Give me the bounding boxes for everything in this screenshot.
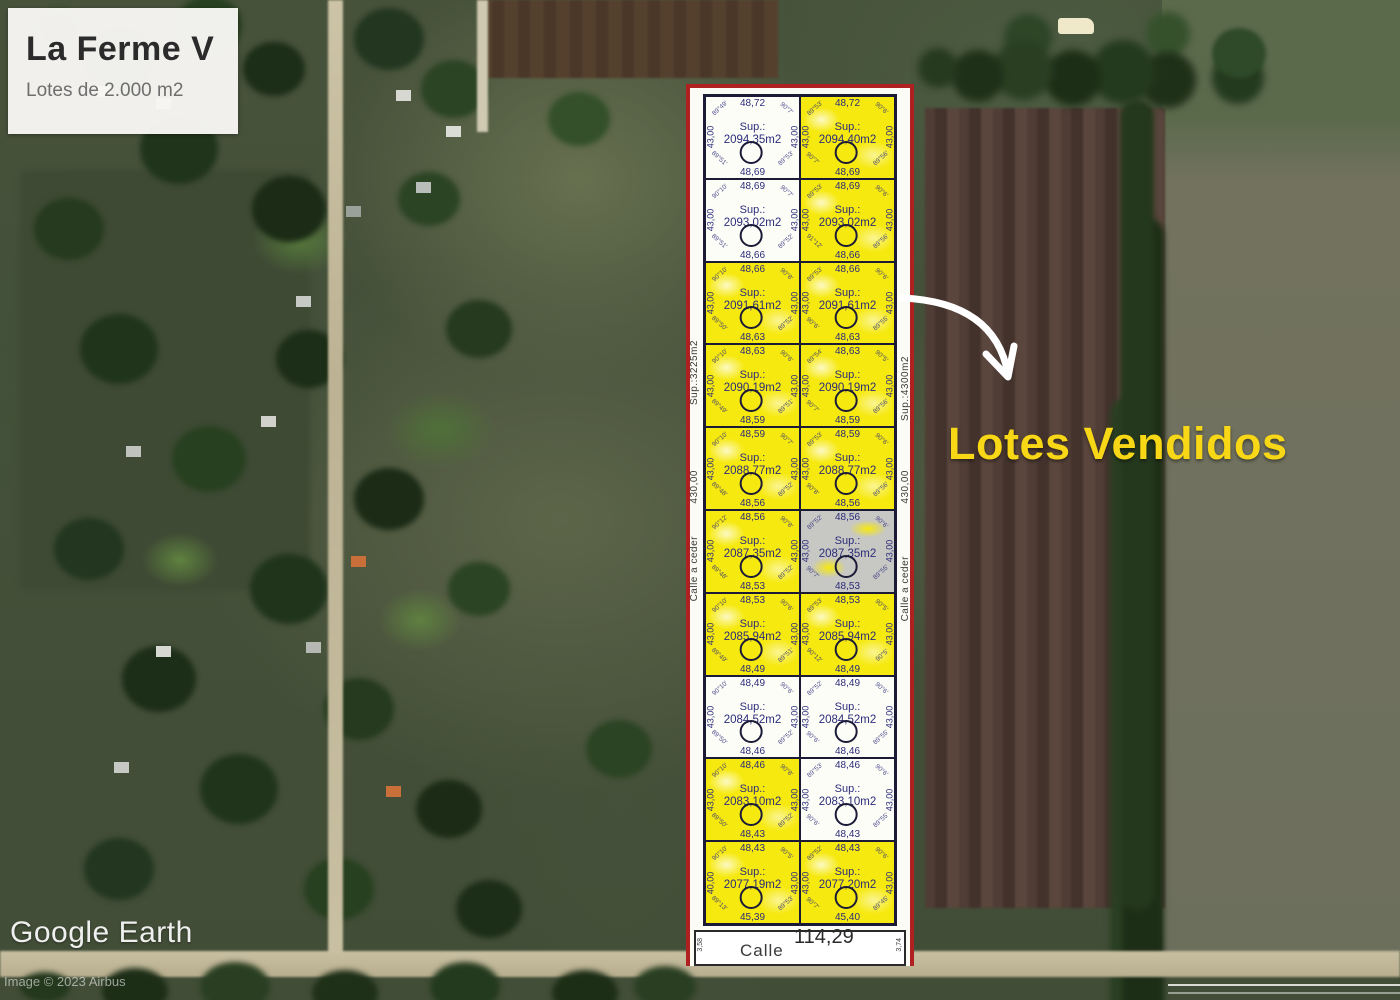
- lot-bottom-width: 48,46: [740, 746, 765, 757]
- lot-top-width: 48,53: [740, 595, 765, 606]
- lot-left-width: 43,00: [800, 540, 810, 563]
- lot-angle-top-left: 90°10': [711, 431, 729, 448]
- lot-cell-row8-right: 48,49 Sup.: 2084,52m2 43,00 43,00 89°52'…: [800, 676, 895, 759]
- lot-bottom-width: 48,46: [835, 746, 860, 757]
- lot-angle-bottom-right: 89°51': [777, 398, 795, 415]
- lot-angle-bottom-right: 89°53': [777, 895, 795, 912]
- lot-bottom-width: 48,49: [835, 664, 860, 675]
- lot-top-width: 48,49: [835, 678, 860, 689]
- street-strip: 3,58 Calle 114,29 3,74: [694, 930, 906, 966]
- lot-angle-top-left: 90°10': [711, 265, 729, 282]
- lot-angle-bottom-left: 89°48': [710, 564, 728, 581]
- lot-top-width: 48,53: [835, 595, 860, 606]
- lot-right-width: 43,00: [790, 375, 800, 398]
- lot-angle-bottom-left: 90°6': [805, 813, 821, 828]
- lot-sup-label: Sup.:: [835, 287, 861, 299]
- lot-sup-label: Sup.:: [835, 783, 861, 795]
- lot-angle-top-right: 90°8': [779, 763, 795, 778]
- well-circle-icon: [834, 638, 857, 661]
- lot-sup-label: Sup.:: [740, 121, 766, 133]
- lot-right-width: 43,00: [790, 789, 800, 812]
- lot-angle-bottom-left: 89°13': [710, 895, 728, 912]
- lot-angle-bottom-left: 91°12': [805, 232, 823, 249]
- lot-left-width: 43,00: [800, 706, 810, 729]
- right-margin-street-label: Calle a ceder: [900, 556, 911, 621]
- lot-sup-label: Sup.:: [740, 535, 766, 547]
- lot-bottom-width: 48,56: [835, 498, 860, 509]
- lot-angle-top-right: 90°6': [874, 515, 890, 530]
- lot-right-width: 43,00: [790, 209, 800, 232]
- street-tick-right: 3,74: [896, 938, 903, 952]
- lot-cell-row9-left: 48,46 Sup.: 2083,10m2 43,00 43,00 90°10'…: [705, 758, 800, 841]
- lot-cell-row7-right: 48,53 Sup.: 2085,94m2 43,00 43,00 89°53'…: [800, 593, 895, 676]
- lot-angle-top-right: 90°6': [874, 432, 890, 447]
- lot-bottom-width: 48,53: [740, 581, 765, 592]
- left-margin-street-label: Calle a ceder: [689, 536, 700, 601]
- title-card: La Ferme V Lotes de 2.000 m2: [8, 8, 238, 134]
- tree: [1212, 28, 1266, 78]
- lot-angle-top-left: 89°53': [806, 597, 824, 614]
- lot-cell-row6-left: 48,56 Sup.: 2087,35m2 43,00 43,00 90°12'…: [705, 510, 800, 593]
- lot-angle-bottom-left: 89°50': [710, 315, 728, 332]
- well-circle-icon: [739, 141, 762, 164]
- lot-angle-top-right: 90°6': [874, 101, 890, 116]
- lot-top-width: 48,59: [740, 429, 765, 440]
- well-circle-icon: [739, 555, 762, 578]
- lot-cell-row2-right: 48,69 Sup.: 2093,02m2 43,00 43,00 89°53'…: [800, 179, 895, 262]
- lot-cell-row10-left: 48,43 Sup.: 2077,19m2 40,00 43,00 90°10'…: [705, 841, 800, 924]
- lot-right-width: 43,00: [885, 789, 895, 812]
- lot-angle-bottom-left: 90°12': [805, 646, 823, 663]
- lot-sup-label: Sup.:: [740, 452, 766, 464]
- lot-top-width: 48,43: [835, 843, 860, 854]
- sold-label: Lotes Vendidos: [948, 418, 1288, 470]
- lot-left-width: 43,00: [800, 871, 810, 894]
- lot-top-width: 48,63: [740, 346, 765, 357]
- lot-angle-top-left: 89°53': [806, 431, 824, 448]
- satellite-lawns: [0, 0, 690, 1000]
- lot-sup-label: Sup.:: [835, 701, 861, 713]
- lot-top-width: 48,63: [835, 346, 860, 357]
- street-tick-left: 3,58: [697, 938, 704, 952]
- lot-angle-bottom-right: 89°52': [777, 564, 795, 581]
- left-margin-length-label: 430,00: [689, 470, 700, 504]
- lot-sup-label: Sup.:: [835, 618, 861, 630]
- lot-bottom-width: 48,63: [835, 332, 860, 343]
- well-circle-icon: [834, 886, 857, 909]
- lot-bottom-width: 48,59: [835, 415, 860, 426]
- lot-angle-top-left: 89°53': [806, 183, 824, 200]
- lot-bottom-width: 48,63: [740, 332, 765, 343]
- lot-angle-top-right: 90°6': [779, 349, 795, 364]
- lot-angle-top-right: 90°6': [779, 681, 795, 696]
- lot-angle-top-left: 90°10': [711, 679, 729, 696]
- lot-left-width: 43,00: [705, 126, 715, 149]
- lot-top-width: 48,72: [835, 98, 860, 109]
- lot-top-width: 48,66: [835, 264, 860, 275]
- lot-right-width: 43,00: [885, 457, 895, 480]
- lot-bottom-width: 48,69: [740, 167, 765, 178]
- lot-cell-row5-left: 48,59 Sup.: 2088,77m2 43,00 43,00 90°10'…: [705, 427, 800, 510]
- well-circle-icon: [739, 389, 762, 412]
- well-circle-icon: [739, 306, 762, 329]
- lot-bottom-width: 48,43: [740, 829, 765, 840]
- lot-left-width: 43,00: [705, 209, 715, 232]
- lot-sup-label: Sup.:: [740, 204, 766, 216]
- lot-cell-row8-left: 48,49 Sup.: 2084,52m2 43,00 43,00 90°10'…: [705, 676, 800, 759]
- lot-angle-bottom-left: 90°7': [805, 896, 821, 911]
- satellite-tilled-field-top: [478, 0, 778, 78]
- lot-cell-row5-right: 48,59 Sup.: 2088,77m2 43,00 43,00 89°53'…: [800, 427, 895, 510]
- lot-right-width: 43,00: [790, 292, 800, 315]
- left-margin-sup-label: Sup.:3225m2: [689, 340, 700, 405]
- lot-cell-row10-right: 48,43 Sup.: 2077,20m2 43,00 43,00 89°52'…: [800, 841, 895, 924]
- lot-angle-top-right: 90°6': [874, 184, 890, 199]
- well-circle-icon: [739, 638, 762, 661]
- street-width: 114,29: [794, 926, 854, 949]
- lot-left-width: 43,00: [800, 789, 810, 812]
- lot-right-width: 43,00: [885, 623, 895, 646]
- lot-sup-label: Sup.:: [835, 866, 861, 878]
- lot-angle-bottom-right: 89°52': [777, 812, 795, 829]
- lot-cell-row7-left: 48,53 Sup.: 2085,94m2 43,00 43,00 90°10'…: [705, 593, 800, 676]
- satellite-plan-image: La Ferme V Lotes de 2.000 m2 Sup.:3225m2…: [0, 0, 1400, 1000]
- lot-bottom-width: 48,49: [740, 664, 765, 675]
- lot-left-width: 43,00: [800, 457, 810, 480]
- lot-left-width: 43,00: [800, 292, 810, 315]
- lot-angle-top-left: 89°49': [711, 100, 729, 117]
- lot-angle-top-right: 90°7': [779, 184, 795, 199]
- lot-right-width: 43,00: [885, 540, 895, 563]
- lot-angle-bottom-right: 89°52': [777, 232, 795, 249]
- lot-left-width: 43,00: [705, 706, 715, 729]
- lot-right-width: 43,00: [790, 706, 800, 729]
- lot-angle-top-left: 89°53': [806, 265, 824, 282]
- lot-angle-top-right: 90°7': [779, 432, 795, 447]
- lot-angle-bottom-right: 89°56': [872, 232, 890, 249]
- lot-angle-top-left: 89°52': [806, 845, 824, 862]
- lot-top-width: 48,59: [835, 429, 860, 440]
- lot-angle-bottom-left: 89°51': [710, 232, 728, 249]
- lot-bottom-width: 48,53: [835, 581, 860, 592]
- lot-left-width: 43,00: [705, 540, 715, 563]
- lot-cell-row2-left: 48,69 Sup.: 2093,02m2 43,00 43,00 90°10'…: [705, 179, 800, 262]
- page-subtitle: Lotes de 2.000 m2: [26, 80, 183, 102]
- lot-top-width: 48,46: [835, 760, 860, 771]
- lot-angle-top-left: 90°10': [711, 762, 729, 779]
- lot-top-width: 48,69: [835, 181, 860, 192]
- well-circle-icon: [739, 472, 762, 495]
- lot-left-width: 43,00: [705, 457, 715, 480]
- lot-right-width: 43,00: [790, 871, 800, 894]
- lot-cell-row4-right: 48,63 Sup.: 2090,19m2 43,00 43,00 89°54'…: [800, 344, 895, 427]
- tree-band: [918, 48, 958, 88]
- lot-sup-label: Sup.:: [740, 783, 766, 795]
- lot-angle-bottom-right: 89°56': [872, 398, 890, 415]
- subdivision-plan: Sup.:3225m2 430,00 Calle a ceder Sup.:43…: [686, 84, 914, 966]
- lot-angle-bottom-right: 89°55': [872, 812, 890, 829]
- lot-bottom-width: 45,39: [740, 912, 765, 923]
- lot-angle-top-right: 90°6': [874, 681, 890, 696]
- lot-angle-bottom-right: 89°45': [872, 895, 890, 912]
- lot-cell-row3-right: 48,66 Sup.: 2091,61m2 43,00 43,00 89°53'…: [800, 262, 895, 345]
- lot-angle-bottom-left: 89°49': [710, 398, 728, 415]
- well-circle-icon: [834, 555, 857, 578]
- lot-right-width: 43,00: [885, 706, 895, 729]
- well-circle-icon: [739, 803, 762, 826]
- lot-angle-bottom-right: 89°52': [777, 729, 795, 746]
- lot-top-width: 48,46: [740, 760, 765, 771]
- lot-angle-bottom-right: 89°52': [777, 481, 795, 498]
- lot-angle-bottom-left: 90°7': [805, 151, 821, 166]
- lot-right-width: 43,00: [885, 126, 895, 149]
- lot-bottom-width: 48,69: [835, 167, 860, 178]
- lot-right-width: 43,00: [885, 209, 895, 232]
- lot-top-width: 48,72: [740, 98, 765, 109]
- lot-cell-row4-left: 48,63 Sup.: 2090,19m2 43,00 43,00 90°10'…: [705, 344, 800, 427]
- lot-angle-top-left: 89°54': [806, 348, 824, 365]
- well-circle-icon: [739, 224, 762, 247]
- lot-bottom-width: 48,59: [740, 415, 765, 426]
- lot-cell-row1-right: 48,72 Sup.: 2094,40m2 43,00 43,00 89°53'…: [800, 96, 895, 179]
- lot-angle-bottom-right: 89°52': [777, 315, 795, 332]
- lot-cell-row3-left: 48,66 Sup.: 2091,61m2 43,00 43,00 90°10'…: [705, 262, 800, 345]
- lot-angle-bottom-left: 89°50': [710, 729, 728, 746]
- lot-top-width: 48,56: [740, 512, 765, 523]
- road-vertical-short: [477, 0, 488, 132]
- lot-angle-bottom-left: 90°6': [805, 316, 821, 331]
- right-margin-length-label: 430,00: [900, 470, 911, 504]
- lot-top-width: 48,56: [835, 512, 860, 523]
- lot-angle-bottom-left: 90°7': [805, 565, 821, 580]
- lot-left-width: 43,00: [800, 623, 810, 646]
- lot-top-width: 48,66: [740, 264, 765, 275]
- imagery-credit: Image © 2023 Airbus: [4, 974, 126, 989]
- lot-top-width: 48,69: [740, 181, 765, 192]
- lot-left-width: 43,00: [800, 209, 810, 232]
- lot-angle-top-right: 90°8': [779, 515, 795, 530]
- road-vertical: [328, 0, 343, 958]
- lot-left-width: 43,00: [800, 375, 810, 398]
- tree-line: [1120, 100, 1154, 910]
- lot-top-width: 48,49: [740, 678, 765, 689]
- lot-top-width: 48,43: [740, 843, 765, 854]
- lot-left-width: 43,00: [705, 375, 715, 398]
- lot-right-width: 43,00: [885, 871, 895, 894]
- lot-sup-label: Sup.:: [740, 618, 766, 630]
- lot-angle-top-right: 90°6': [874, 763, 890, 778]
- lot-angle-top-left: 90°10': [711, 348, 729, 365]
- lot-cell-row6-right: 48,56 Sup.: 2087,35m2 43,00 43,00 89°52'…: [800, 510, 895, 593]
- lot-grid: 48,72 Sup.: 2094,35m2 43,00 43,00 89°49'…: [703, 94, 897, 926]
- well-circle-icon: [834, 720, 857, 743]
- lot-angle-top-right: 90°5': [779, 846, 795, 861]
- lot-left-width: 43,00: [705, 292, 715, 315]
- lot-right-width: 43,00: [790, 623, 800, 646]
- well-circle-icon: [834, 141, 857, 164]
- well-circle-icon: [834, 389, 857, 412]
- lot-angle-top-left: 89°53': [806, 100, 824, 117]
- lot-angle-top-right: 90°5': [874, 349, 890, 364]
- lot-cell-row1-left: 48,72 Sup.: 2094,35m2 43,00 43,00 89°49'…: [705, 96, 800, 179]
- lot-angle-bottom-right: 89°56': [872, 481, 890, 498]
- lot-angle-bottom-left: 89°49': [710, 646, 728, 663]
- lot-right-width: 43,00: [790, 457, 800, 480]
- lot-bottom-width: 48,66: [835, 250, 860, 261]
- lot-sup-label: Sup.:: [740, 866, 766, 878]
- lot-angle-bottom-right: 89°55': [872, 564, 890, 581]
- lot-angle-bottom-left: 90°6': [805, 730, 821, 745]
- lot-bottom-width: 45,40: [835, 912, 860, 923]
- lot-angle-bottom-left: 90°7': [805, 399, 821, 414]
- building-roof: [1058, 18, 1094, 34]
- lot-sup-label: Sup.:: [740, 287, 766, 299]
- lot-sup-label: Sup.:: [835, 121, 861, 133]
- lot-bottom-width: 48,66: [740, 250, 765, 261]
- lot-angle-bottom-right: 89°55': [872, 729, 890, 746]
- lot-angle-top-left: 89°52': [806, 514, 824, 531]
- page-title: La Ferme V: [26, 30, 214, 69]
- lot-bottom-width: 48,43: [835, 829, 860, 840]
- lot-angle-top-right: 90°6': [874, 846, 890, 861]
- lot-angle-top-left: 90°12': [711, 514, 729, 531]
- lot-left-width: 43,00: [800, 126, 810, 149]
- lot-angle-top-left: 89°53': [806, 762, 824, 779]
- lot-angle-top-right: 90°5': [874, 598, 890, 613]
- lot-angle-bottom-left: 89°50': [710, 812, 728, 829]
- lot-angle-top-right: 90°6': [779, 598, 795, 613]
- lot-left-width: 43,00: [705, 623, 715, 646]
- lot-angle-top-left: 90°10': [711, 597, 729, 614]
- street-name: Calle: [740, 941, 784, 961]
- lot-sup-label: Sup.:: [835, 369, 861, 381]
- satellite-field-far-right: [1162, 0, 1400, 952]
- lot-right-width: 43,00: [790, 540, 800, 563]
- lot-angle-bottom-right: 89°51': [777, 646, 795, 663]
- lot-sup-label: Sup.:: [835, 452, 861, 464]
- well-circle-icon: [739, 886, 762, 909]
- lot-angle-top-left: 90°10': [711, 183, 729, 200]
- lot-angle-top-right: 90°8': [779, 267, 795, 282]
- lot-angle-bottom-right: 89°53': [777, 150, 795, 167]
- lot-angle-bottom-right: 90°5': [875, 648, 891, 663]
- google-earth-logo: Google Earth: [10, 916, 193, 950]
- lot-sup-label: Sup.:: [740, 369, 766, 381]
- lot-angle-bottom-left: 90°8': [805, 482, 821, 497]
- lot-left-width: 43,00: [705, 789, 715, 812]
- lot-angle-top-right: 90°7': [779, 101, 795, 116]
- lot-angle-bottom-left: 89°48': [710, 481, 728, 498]
- lot-angle-top-left: 89°52': [806, 679, 824, 696]
- well-circle-icon: [834, 306, 857, 329]
- lot-sup-label: Sup.:: [835, 204, 861, 216]
- lot-angle-bottom-right: 89°55': [872, 315, 890, 332]
- lot-right-width: 43,00: [790, 126, 800, 149]
- lot-sup-label: Sup.:: [835, 535, 861, 547]
- lot-left-width: 40,00: [705, 871, 715, 894]
- well-circle-icon: [834, 803, 857, 826]
- sold-arrow: [890, 278, 1040, 408]
- lot-angle-bottom-right: 89°56': [872, 150, 890, 167]
- lot-bottom-width: 48,56: [740, 498, 765, 509]
- well-circle-icon: [739, 720, 762, 743]
- fence-line: [1168, 984, 1400, 986]
- well-circle-icon: [834, 472, 857, 495]
- lot-angle-bottom-left: 89°51': [710, 150, 728, 167]
- well-circle-icon: [834, 224, 857, 247]
- lot-angle-top-right: 90°6': [874, 267, 890, 282]
- lot-sup-label: Sup.:: [740, 701, 766, 713]
- lot-cell-row9-right: 48,46 Sup.: 2083,10m2 43,00 43,00 89°53'…: [800, 758, 895, 841]
- lot-angle-top-left: 90°10': [711, 845, 729, 862]
